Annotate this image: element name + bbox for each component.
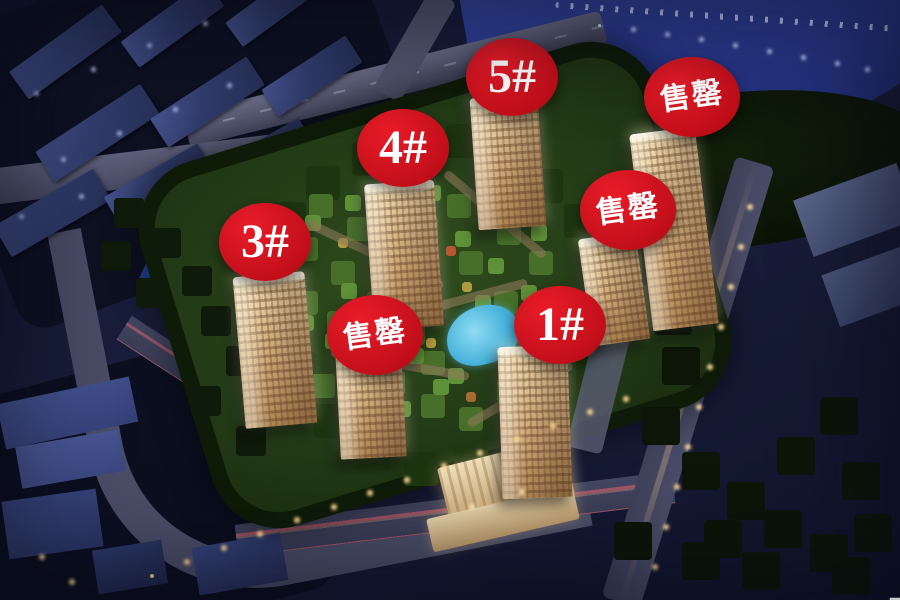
aerial-rendering: 5# 售罄 4# 售罄 3# 售罄 1# 房天下 Fang.com	[0, 0, 900, 600]
building-marker-3[interactable]: 3#	[219, 203, 311, 281]
soldout-marker-label: 售罄	[658, 78, 726, 117]
building-marker-label: 1#	[536, 301, 584, 349]
street-lights-warm	[150, 574, 154, 578]
tower-1	[497, 345, 572, 499]
building-marker-label: 3#	[241, 218, 289, 266]
soldout-marker-east[interactable]: 售罄	[580, 170, 676, 250]
tree-cluster-southeast	[0, 0, 2, 2]
soldout-marker-northeast[interactable]: 售罄	[644, 57, 740, 137]
building-marker-5[interactable]: 5#	[466, 38, 558, 116]
building-marker-label: 4#	[379, 124, 427, 172]
soldout-marker-label: 售罄	[594, 191, 662, 230]
tower-3	[233, 271, 318, 429]
city-building-east	[821, 244, 900, 327]
street-lights-cool	[598, 24, 601, 27]
soldout-marker-southwest[interactable]: 售罄	[327, 295, 423, 375]
soldout-marker-label: 售罄	[341, 316, 409, 355]
building-marker-1[interactable]: 1#	[514, 286, 606, 364]
fang-watermark-logo: Fang.com	[886, 592, 900, 600]
building-marker-4[interactable]: 4#	[357, 109, 449, 187]
building-marker-label: 5#	[488, 53, 536, 101]
